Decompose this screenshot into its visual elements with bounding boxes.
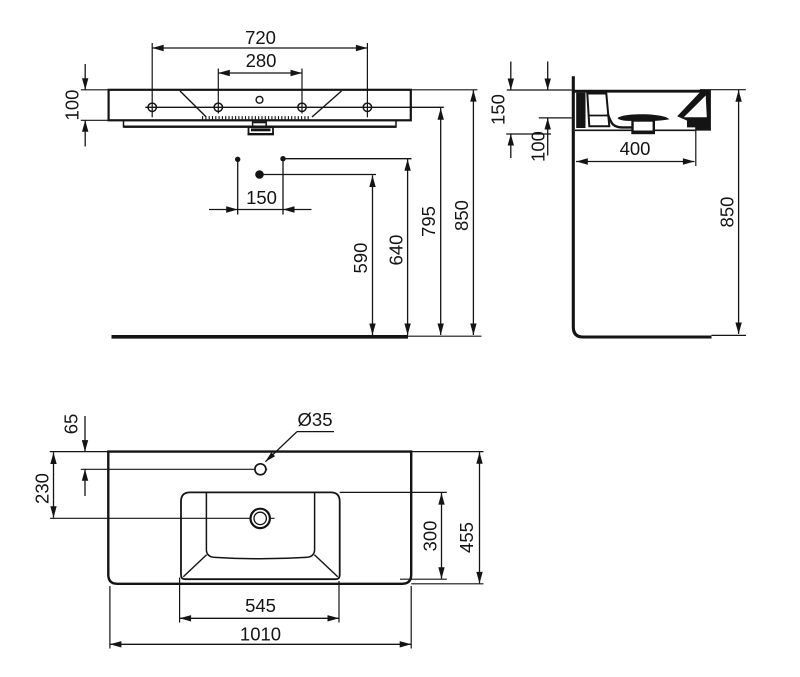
- svg-text:280: 280: [246, 50, 277, 71]
- svg-text:795: 795: [418, 206, 439, 237]
- svg-text:300: 300: [419, 521, 440, 552]
- svg-text:100: 100: [62, 90, 83, 121]
- svg-text:850: 850: [451, 200, 472, 231]
- svg-text:640: 640: [385, 235, 406, 266]
- svg-text:720: 720: [245, 27, 276, 48]
- svg-text:590: 590: [350, 243, 371, 274]
- svg-text:150: 150: [487, 94, 508, 125]
- svg-text:150: 150: [246, 187, 277, 208]
- svg-text:850: 850: [717, 197, 738, 228]
- svg-text:545: 545: [245, 595, 276, 616]
- svg-text:230: 230: [32, 473, 53, 504]
- svg-text:100: 100: [528, 131, 549, 162]
- svg-text:400: 400: [620, 138, 651, 159]
- svg-text:65: 65: [60, 414, 81, 435]
- svg-text:455: 455: [456, 522, 477, 553]
- svg-text:1010: 1010: [240, 623, 281, 644]
- svg-text:Ø35: Ø35: [298, 409, 333, 430]
